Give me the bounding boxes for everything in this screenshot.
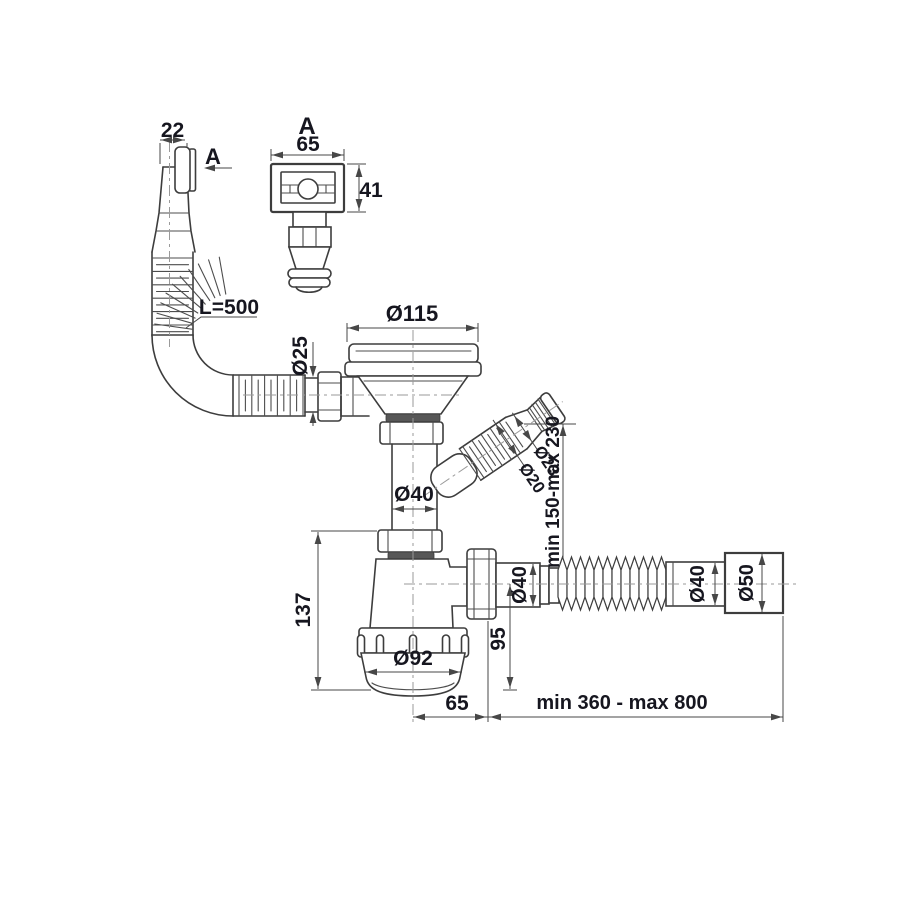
- section-arrow-label: A: [205, 144, 221, 169]
- siphon-technical-drawing: Ø20 Ø23: [0, 0, 900, 900]
- outlet-height-label: 95: [487, 627, 510, 651]
- detail-height-label: 41: [359, 179, 383, 202]
- tailpipe-diameter-label: Ø40: [394, 483, 434, 506]
- outlet-pipe-diameter-label: Ø40: [509, 566, 531, 604]
- hose-bend: [152, 335, 233, 416]
- body-height-label: 137: [292, 592, 315, 627]
- overflow-cover: [175, 147, 190, 193]
- siphon-body: [358, 549, 497, 696]
- overflow-width-label: 22: [161, 119, 184, 142]
- hose-diameter-label: Ø25: [289, 336, 312, 376]
- flex-end-diameter-label: Ø50: [736, 564, 758, 602]
- overflow-elbow-side-view: [152, 147, 196, 252]
- siphon-bell: [370, 559, 467, 628]
- overflow-detail-view-a: [271, 164, 344, 292]
- strainer-diameter-label: Ø115: [386, 301, 439, 326]
- outlet-offset-label: 65: [445, 692, 469, 715]
- detail-width-label: 65: [296, 133, 320, 156]
- hose-length-label: L=500: [199, 296, 259, 319]
- branch-height-label: min 150-max 230: [543, 416, 564, 568]
- detail-overflow-hole: [298, 179, 318, 199]
- cup-diameter-label: Ø92: [393, 647, 433, 670]
- flex-pipe-diameter-label: Ø40: [687, 565, 709, 603]
- overflow-hose: [152, 252, 369, 421]
- dimension-lines: [160, 137, 783, 722]
- flex-length-label: min 360 - max 800: [536, 692, 707, 714]
- dimension-labels: 22 A A 65 41 L=500 Ø25 Ø115 Ø40 min 150-…: [161, 113, 758, 715]
- technical-drawing-page: Ø20 Ø23: [0, 0, 900, 900]
- hose-nut: [318, 372, 341, 421]
